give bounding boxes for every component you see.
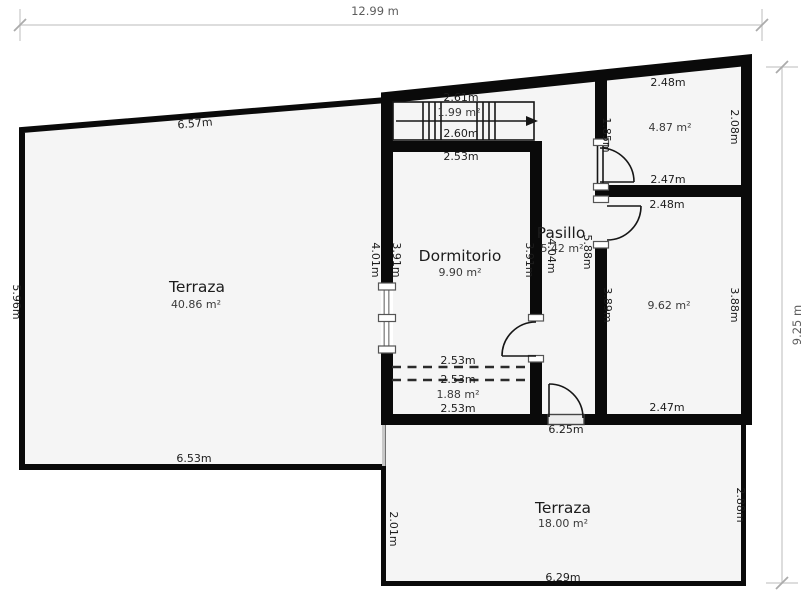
terraza-left-dim-bottom: 6.53m [176,452,211,465]
floor-plan-canvas: 12.99 m 9.25 m 6.57m 5.96m Terraza 40.86… [0,0,808,602]
pasillo-name: Pasillo [537,224,586,242]
room-terraza-bottom: Terraza 18.00 m² 2.01m 2.88m 6.29m 6.25m [381,423,747,586]
window-frame-block [379,346,396,353]
room-mid-right-dim-right: 3.88m [728,287,741,322]
dormitorio-dim-right-inside: 3.91m [523,242,536,277]
dimension-top: 12.99 m [14,4,768,41]
door-opening-dormitorio [530,321,542,356]
dormitorio-dim-top: 2.53m [443,150,478,163]
window-frame-block [379,283,396,290]
room-mid-right-area: 9.62 m² [647,299,690,312]
pasillo-dim-left: 4.04m [545,238,558,273]
terraza-bottom-name: Terraza [534,499,591,517]
terraza-bottom-area: 18.00 m² [538,517,588,530]
door-jamb [529,315,544,322]
door-jamb [594,184,609,191]
terraza-left-name: Terraza [168,278,225,296]
dormitorio-name: Dormitorio [419,247,502,265]
door-opening-mid-right-room [595,202,607,242]
pasillo-dim-right: 5.88m [581,234,594,269]
terraza-bottom-dim-right: 2.88m [734,487,747,522]
room-mid-right-dim-bottom: 2.47m [649,401,684,414]
dormitorio-area: 9.90 m² [438,266,481,279]
window-frame-block [379,315,396,322]
room-top-right-dim-top: 2.48m [650,76,685,89]
stairs-dim-bottom: 2.60m [443,127,478,140]
closet-dim-top-upper: 2.53m [440,354,475,367]
closet-labels: 2.53m 2.53m 1.88 m² 2.53m [436,354,479,415]
room-mid-right-dim-left: 3.89m [601,287,614,322]
room-top-right-dim-bottom: 2.47m [650,173,685,186]
dormitorio-dim-left-inside: 3.91m [390,242,403,277]
terraza-bottom-dim-bottom: 6.29m [545,571,580,584]
wall-right [741,58,752,425]
closet-dim-bottom: 2.53m [440,402,475,415]
door-jamb [594,242,609,249]
wall-dormitorio-east [530,141,542,425]
room-top-right-dim-right: 2.08m [728,109,741,144]
dimension-right: 9.25 m [766,61,804,589]
floor-plan-svg: 12.99 m 9.25 m 6.57m 5.96m Terraza 40.86… [0,0,808,602]
dormitorio-dim-left-outside: 4.01m [369,242,382,277]
stairs-area: 1.99 m² [437,106,480,119]
door-jamb [594,196,609,203]
overall-height-label: 9.25 m [790,305,804,345]
terraza-left-area: 40.86 m² [171,298,221,311]
room-mid-right-dim-top: 2.48m [649,198,684,211]
stairs-dim-top: 2.61m [443,91,478,104]
terraza-left-dim-left: 5.96m [10,284,23,319]
room-top-right-area: 4.87 m² [648,121,691,134]
door-threshold [548,415,584,425]
closet-area: 1.88 m² [436,388,479,401]
wall-between-right-rooms [595,185,752,197]
room-terraza-left: 6.57m 5.96m Terraza 40.86 m² 6.53m [10,100,386,467]
stairs-labels: 2.61m 1.99 m² 2.60m [437,91,480,140]
terraza-bottom-dim-left: 2.01m [387,511,400,546]
window-dormitorio [379,283,396,353]
overall-width-label: 12.99 m [351,4,399,18]
closet-dim-top-lower: 2.53m [440,373,475,386]
pasillo-dim-door-top: 1.85m [600,117,613,152]
